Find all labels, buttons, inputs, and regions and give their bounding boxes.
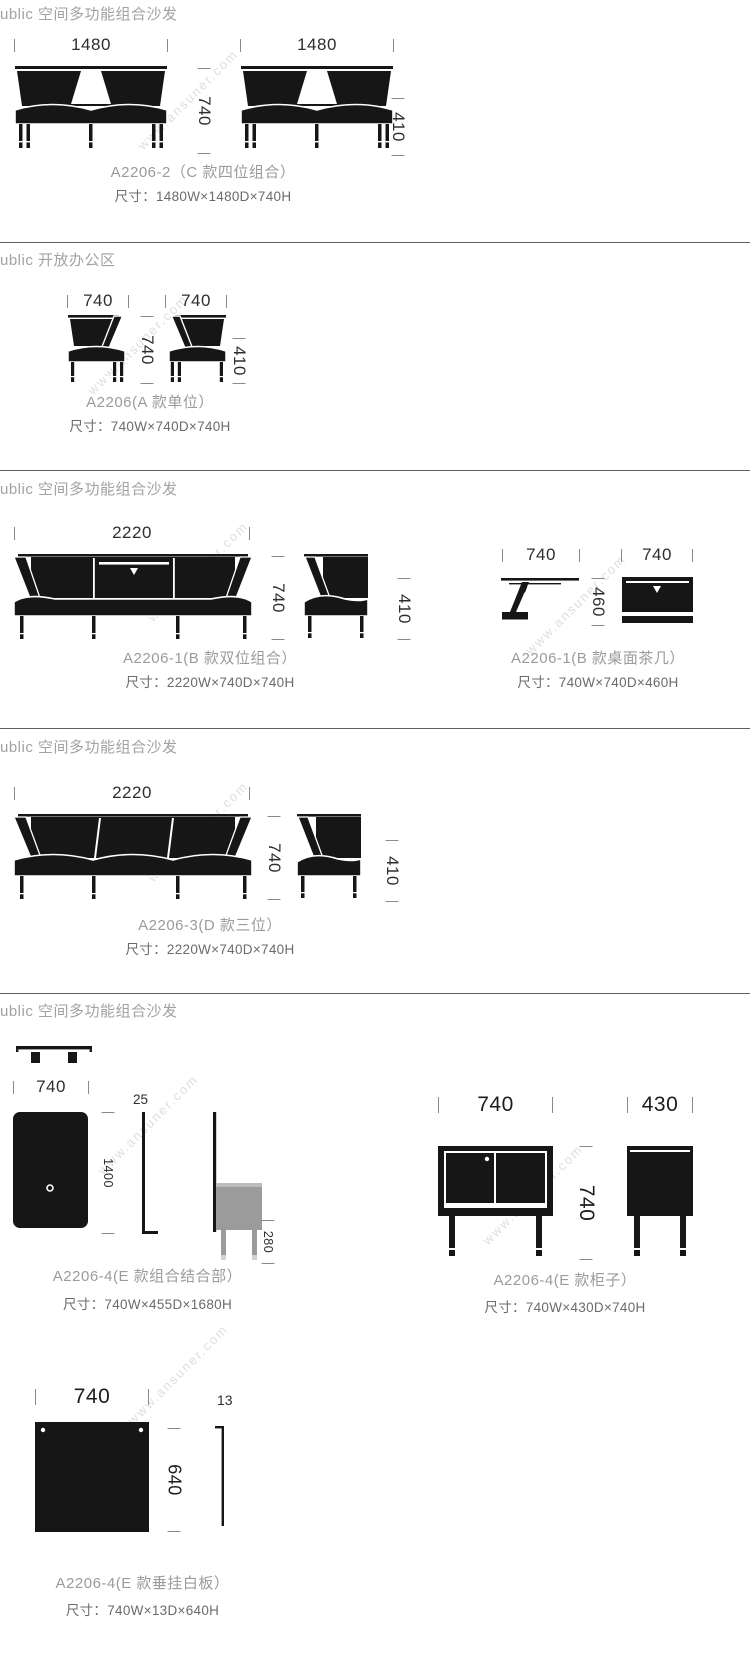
dim-tick bbox=[198, 153, 211, 154]
dim-tick bbox=[262, 1263, 275, 1264]
dim-tick bbox=[102, 1233, 115, 1234]
dim-tick bbox=[592, 625, 605, 626]
cabinet-side-view-figure bbox=[627, 1146, 693, 1258]
dim-tick bbox=[392, 98, 405, 99]
dim-tick bbox=[502, 549, 503, 562]
tea-table-side-view-figure bbox=[501, 578, 579, 622]
dim-tick bbox=[233, 338, 246, 339]
dim-value: 460 bbox=[588, 587, 608, 617]
dim-tick bbox=[88, 1081, 89, 1094]
single-seat-sofa-front-figure bbox=[67, 315, 129, 382]
sofa-side-view-figure bbox=[296, 814, 362, 900]
s1-size: 尺寸：1480W×1480D×740H bbox=[30, 185, 376, 205]
dim-tick bbox=[262, 1220, 275, 1221]
dim-tick bbox=[398, 639, 411, 640]
dim-value: 740 bbox=[264, 843, 284, 873]
dim-tick bbox=[393, 39, 394, 52]
s3-table-size: 尺寸：740W×740D×460H bbox=[450, 671, 746, 691]
s5-cabinet-height-dim: 740 bbox=[578, 1146, 594, 1260]
dim-tick bbox=[580, 1146, 593, 1147]
whiteboard-side-view-figure bbox=[215, 1426, 229, 1528]
dim-tick bbox=[272, 639, 285, 640]
s6-height-dim: 640 bbox=[166, 1428, 182, 1532]
dim-tick bbox=[692, 1097, 693, 1113]
dim-tick bbox=[198, 68, 211, 69]
s5-panel-height-dim: 1400 bbox=[100, 1112, 116, 1234]
s3-table-depth-dim: 740 bbox=[502, 544, 580, 566]
s3-sofa-size: 尺寸：2220W×740D×740H bbox=[60, 671, 360, 691]
dim-tick bbox=[249, 787, 250, 800]
dim-value: 410 bbox=[229, 346, 249, 376]
s3-sofa-caption: A2206-1(B 款双位组合） bbox=[60, 647, 360, 668]
s2-width-dim-right: 740 bbox=[165, 290, 227, 312]
s3-table-width-dim: 740 bbox=[621, 544, 693, 566]
section1-header: ublic 空间多功能组合沙发 bbox=[0, 3, 178, 24]
dim-tick bbox=[168, 1428, 181, 1429]
section2-header: ublic 开放办公区 bbox=[0, 249, 116, 270]
dim-tick bbox=[552, 1097, 553, 1113]
bench-top-view-figure bbox=[16, 1046, 92, 1063]
dim-tick bbox=[240, 39, 241, 52]
section-divider bbox=[0, 242, 750, 243]
dim-tick bbox=[67, 295, 68, 308]
s6-size: 尺寸：740W×13D×640H bbox=[15, 1599, 270, 1619]
s3-seat-height-dim: 410 bbox=[396, 578, 412, 640]
s5-cabinet-size: 尺寸：740W×430D×740H bbox=[440, 1296, 690, 1316]
dim-tick bbox=[621, 549, 622, 562]
s5-cabinet-caption: A2206-4(E 款柜子） bbox=[440, 1269, 690, 1290]
dim-tick bbox=[268, 899, 281, 900]
dim-tick bbox=[226, 295, 227, 308]
dim-tick bbox=[128, 295, 129, 308]
dim-tick bbox=[398, 578, 411, 579]
dim-value: 410 bbox=[388, 112, 408, 142]
s4-height-dim: 740 bbox=[266, 816, 282, 900]
two-seat-combo-sofa-front-figure bbox=[13, 554, 253, 640]
dim-value: 1480 bbox=[71, 35, 111, 55]
s2-height-dim: 740 bbox=[139, 316, 155, 384]
s1-seat-height-dim: 410 bbox=[390, 98, 406, 156]
cabinet-front-view-figure bbox=[438, 1146, 553, 1258]
dim-tick bbox=[14, 527, 15, 540]
dim-tick bbox=[14, 39, 15, 52]
s5-panel-thickness-label: 25 bbox=[133, 1092, 148, 1107]
dim-value: 740 bbox=[526, 545, 556, 565]
dim-tick bbox=[141, 383, 154, 384]
section3-header: ublic 空间多功能组合沙发 bbox=[0, 478, 178, 499]
s4-size: 尺寸：2220W×740D×740H bbox=[60, 938, 360, 958]
s5-combo-size: 尺寸：740W×455D×1680H bbox=[15, 1293, 280, 1313]
table-top-view-figure bbox=[13, 1112, 88, 1228]
s5-cabinet-width-dim: 740 bbox=[438, 1094, 553, 1116]
dim-value: 2220 bbox=[112, 523, 152, 543]
dim-tick bbox=[392, 155, 405, 156]
dim-tick bbox=[386, 840, 399, 841]
dim-tick bbox=[627, 1097, 628, 1113]
s1-width-dim-right: 1480 bbox=[240, 34, 394, 56]
dim-value: 1480 bbox=[297, 35, 337, 55]
dim-value: 740 bbox=[477, 1093, 514, 1117]
tea-table-front-view-figure bbox=[622, 577, 693, 623]
dim-tick bbox=[272, 556, 285, 557]
four-seat-sofa-front-figure bbox=[240, 66, 394, 150]
dim-value: 740 bbox=[268, 583, 288, 613]
s1-height-dim: 740 bbox=[196, 68, 212, 154]
s5-combo-caption: A2206-4(E 款组合结合部） bbox=[15, 1265, 280, 1286]
dim-tick bbox=[386, 901, 399, 902]
dim-tick bbox=[165, 295, 166, 308]
dim-value: 740 bbox=[74, 1385, 111, 1409]
s2-size: 尺寸：740W×740D×740H bbox=[20, 415, 280, 435]
dim-value: 430 bbox=[642, 1093, 679, 1117]
dim-tick bbox=[249, 527, 250, 540]
dim-tick bbox=[580, 1259, 593, 1260]
mounting-hole bbox=[139, 1428, 143, 1432]
dim-value: 740 bbox=[574, 1185, 598, 1222]
s6-thickness-label: 13 bbox=[217, 1392, 233, 1408]
section-divider bbox=[0, 993, 750, 994]
section5-header: ublic 空间多功能组合沙发 bbox=[0, 1000, 178, 1021]
s6-width-dim: 740 bbox=[35, 1386, 149, 1408]
section-divider bbox=[0, 470, 750, 471]
s4-caption: A2206-3(D 款三位） bbox=[60, 914, 360, 935]
s5-combo-width-dim: 740 bbox=[13, 1076, 89, 1098]
four-seat-sofa-front-figure bbox=[14, 66, 168, 150]
dim-value: 2220 bbox=[112, 783, 152, 803]
dim-tick bbox=[167, 39, 168, 52]
s1-width-dim-left: 1480 bbox=[14, 34, 168, 56]
s4-width-dim: 2220 bbox=[14, 782, 250, 804]
s2-width-dim-left: 740 bbox=[67, 290, 129, 312]
watermark: www.ansuner.com bbox=[125, 1321, 231, 1427]
dim-tick bbox=[35, 1389, 36, 1405]
dim-value: 740 bbox=[194, 96, 214, 126]
dim-value: 740 bbox=[642, 545, 672, 565]
section-divider bbox=[0, 728, 750, 729]
dim-value: 280 bbox=[261, 1231, 275, 1253]
sofa-side-view-figure bbox=[303, 554, 369, 640]
s4-seat-height-dim: 410 bbox=[384, 840, 400, 902]
dim-tick bbox=[148, 1389, 149, 1405]
s6-caption: A2206-4(E 款垂挂白板） bbox=[15, 1572, 270, 1593]
s3-table-height-dim: 460 bbox=[590, 578, 606, 626]
dim-tick bbox=[579, 549, 580, 562]
combo-side-view-figure bbox=[211, 1112, 267, 1260]
mounting-hole bbox=[41, 1428, 45, 1432]
s5-leg-height-dim: 280 bbox=[260, 1220, 276, 1264]
dim-tick bbox=[692, 549, 693, 562]
s5-cabinet-depth-dim: 430 bbox=[627, 1094, 693, 1116]
dim-tick bbox=[14, 787, 15, 800]
s2-seat-height-dim: 410 bbox=[231, 338, 247, 384]
dim-value: 740 bbox=[83, 291, 113, 311]
dim-value: 410 bbox=[394, 594, 414, 624]
s3-sofa-height-dim: 740 bbox=[270, 556, 286, 640]
s3-table-caption: A2206-1(B 款桌面茶几） bbox=[450, 647, 746, 668]
dim-tick bbox=[268, 816, 281, 817]
dim-value: 740 bbox=[137, 335, 157, 365]
s1-caption: A2206-2（C 款四位组合） bbox=[30, 161, 376, 182]
dim-value: 640 bbox=[164, 1464, 185, 1496]
s2-caption: A2206(A 款单位） bbox=[20, 391, 280, 412]
s3-sofa-width-dim: 2220 bbox=[14, 522, 250, 544]
panel-side-view-figure bbox=[140, 1112, 162, 1234]
whiteboard-front-view-figure bbox=[35, 1422, 149, 1532]
dim-tick bbox=[102, 1112, 115, 1113]
dim-value: 740 bbox=[181, 291, 211, 311]
single-seat-sofa-front-figure-mirrored bbox=[165, 315, 227, 382]
door-knob bbox=[485, 1157, 489, 1161]
dim-tick bbox=[233, 383, 246, 384]
dim-tick bbox=[592, 578, 605, 579]
three-seat-sofa-front-figure bbox=[13, 814, 253, 900]
dim-tick bbox=[168, 1531, 181, 1532]
furniture-spec-sheet: { "watermark": "www.ansuner.com", "s1": … bbox=[0, 0, 750, 1659]
dim-tick bbox=[438, 1097, 439, 1113]
dim-value: 1400 bbox=[101, 1158, 115, 1188]
dim-tick bbox=[141, 316, 154, 317]
section4-header: ublic 空间多功能组合沙发 bbox=[0, 736, 178, 757]
dim-tick bbox=[13, 1081, 14, 1094]
dim-value: 740 bbox=[36, 1077, 66, 1097]
dim-value: 410 bbox=[382, 856, 402, 886]
